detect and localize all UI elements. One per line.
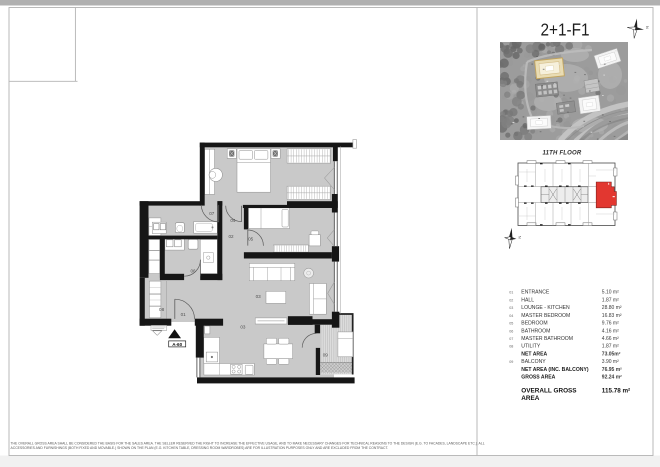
svg-text:AREA: AREA: [521, 395, 539, 402]
svg-text:115.78 m²: 115.78 m²: [602, 387, 630, 394]
svg-text:N: N: [645, 26, 649, 29]
svg-text:GROSS AREA: GROSS AREA: [521, 375, 555, 381]
svg-text:92.24 m²: 92.24 m²: [602, 375, 622, 381]
svg-text:06: 06: [190, 269, 196, 274]
svg-text:05: 05: [509, 322, 513, 326]
svg-text:9.76 m²: 9.76 m²: [602, 321, 619, 327]
svg-text:05: 05: [248, 237, 254, 242]
svg-text:3.90 m²: 3.90 m²: [602, 359, 619, 365]
svg-text:01: 01: [509, 291, 513, 295]
svg-text:01: 01: [181, 312, 187, 317]
svg-text:08: 08: [509, 345, 513, 349]
svg-text:09: 09: [323, 353, 329, 358]
svg-text:BATHROOM: BATHROOM: [521, 328, 550, 334]
svg-text:BALCONY: BALCONY: [521, 359, 546, 365]
svg-text:OVERALL GROSS: OVERALL GROSS: [521, 387, 577, 394]
svg-text:28.80 m²: 28.80 m²: [602, 305, 622, 311]
svg-text:LOUNGE - KITCHEN: LOUNGE - KITCHEN: [521, 305, 570, 311]
svg-text:ACCESSORIES AND FURNISHINGS (B: ACCESSORIES AND FURNISHINGS (BOTH FIXED …: [11, 446, 389, 450]
svg-text:MASTER BEDROOM: MASTER BEDROOM: [521, 313, 570, 319]
svg-text:08: 08: [159, 307, 165, 312]
svg-text:5.10 m²: 5.10 m²: [602, 290, 619, 296]
svg-text:16.83 m²: 16.83 m²: [602, 313, 622, 319]
svg-text:UTILITY: UTILITY: [521, 344, 541, 350]
svg-text:11TH FLOOR: 11TH FLOOR: [543, 150, 582, 156]
svg-text:NET AREA: NET AREA: [521, 351, 547, 357]
svg-text:03: 03: [509, 306, 513, 310]
svg-text:07: 07: [209, 211, 215, 216]
svg-text:04: 04: [230, 218, 236, 223]
svg-text:02: 02: [509, 298, 513, 302]
svg-text:07: 07: [509, 337, 513, 341]
svg-text:03: 03: [240, 324, 246, 329]
svg-text:N: N: [518, 236, 522, 239]
svg-text:1.87 m²: 1.87 m²: [602, 297, 619, 303]
svg-text:04: 04: [509, 314, 513, 318]
svg-text:06: 06: [509, 329, 513, 333]
svg-text:76.95 m²: 76.95 m²: [602, 367, 622, 373]
svg-text:4.16 m²: 4.16 m²: [602, 328, 619, 334]
svg-text:ENTRANCE: ENTRANCE: [521, 290, 550, 296]
svg-text:NET AREA (INC. BALCONY): NET AREA (INC. BALCONY): [521, 367, 589, 373]
svg-text:A-60: A-60: [172, 342, 182, 347]
svg-text:73.05m²: 73.05m²: [602, 351, 621, 357]
svg-text:4.66 m²: 4.66 m²: [602, 336, 619, 342]
svg-text:HALL: HALL: [521, 297, 534, 303]
svg-text:02: 02: [228, 234, 234, 239]
svg-text:1.87 m²: 1.87 m²: [602, 344, 619, 350]
svg-text:09: 09: [509, 360, 513, 364]
svg-text:BEDROOM: BEDROOM: [521, 321, 547, 327]
svg-text:MASTER BATHROOM: MASTER BATHROOM: [521, 336, 573, 342]
svg-text:03: 03: [256, 294, 262, 299]
svg-text:2+1-F1: 2+1-F1: [541, 19, 590, 39]
